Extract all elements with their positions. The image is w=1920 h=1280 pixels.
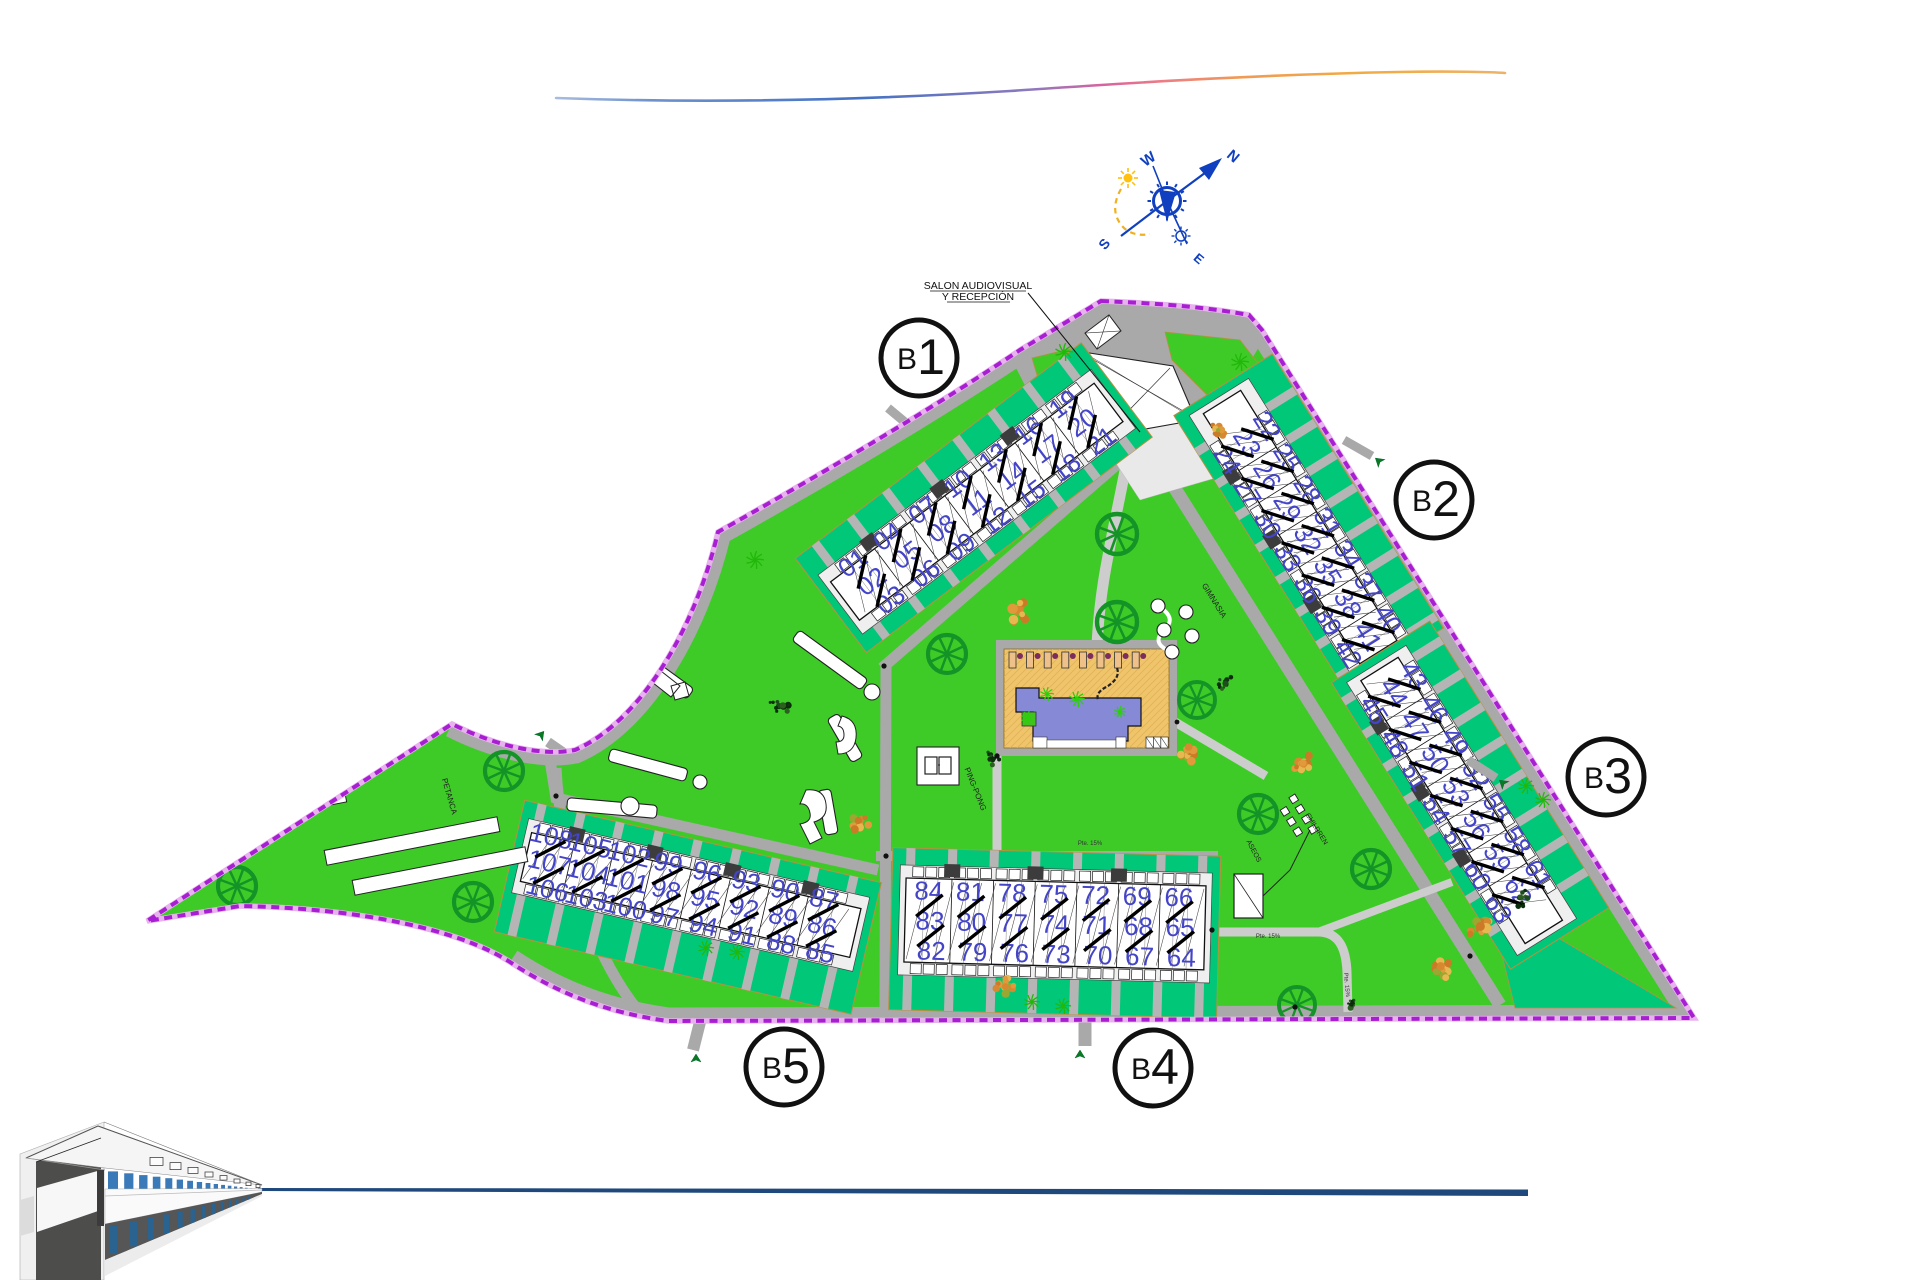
svg-text:73: 73 (1041, 939, 1071, 970)
svg-text:5: 5 (782, 1038, 810, 1094)
svg-text:69: 69 (1122, 881, 1152, 912)
svg-text:67: 67 (1125, 941, 1155, 972)
svg-text:66: 66 (1164, 882, 1194, 913)
svg-text:64: 64 (1166, 942, 1196, 973)
svg-text:78: 78 (997, 878, 1027, 909)
svg-text:68: 68 (1124, 911, 1154, 942)
svg-text:76: 76 (1000, 938, 1030, 969)
svg-text:74: 74 (1040, 909, 1070, 940)
svg-text:B: B (1131, 1053, 1151, 1086)
svg-text:75: 75 (1039, 879, 1069, 910)
svg-text:71: 71 (1082, 910, 1112, 941)
svg-text:79: 79 (958, 937, 988, 968)
svg-text:Y RECEPCIÓN: Y RECEPCIÓN (942, 290, 1014, 303)
svg-text:83: 83 (915, 905, 945, 936)
svg-text:65: 65 (1165, 912, 1195, 943)
svg-text:B: B (762, 1052, 782, 1085)
svg-text:82: 82 (916, 935, 946, 966)
svg-text:80: 80 (957, 906, 987, 937)
svg-text:72: 72 (1081, 880, 1111, 911)
svg-text:3: 3 (1604, 748, 1632, 804)
svg-text:70: 70 (1083, 940, 1113, 971)
svg-text:B: B (1584, 762, 1604, 795)
svg-text:1: 1 (917, 329, 945, 385)
svg-text:B: B (1412, 485, 1432, 518)
svg-text:77: 77 (999, 908, 1029, 939)
svg-text:84: 84 (914, 875, 944, 906)
svg-text:4: 4 (1151, 1039, 1179, 1095)
svg-text:2: 2 (1432, 471, 1460, 527)
svg-text:Pte. 15%: Pte. 15% (1256, 934, 1281, 940)
svg-text:B: B (897, 343, 917, 376)
svg-text:81: 81 (956, 876, 986, 907)
svg-text:Pte. 15%: Pte. 15% (1078, 841, 1103, 847)
